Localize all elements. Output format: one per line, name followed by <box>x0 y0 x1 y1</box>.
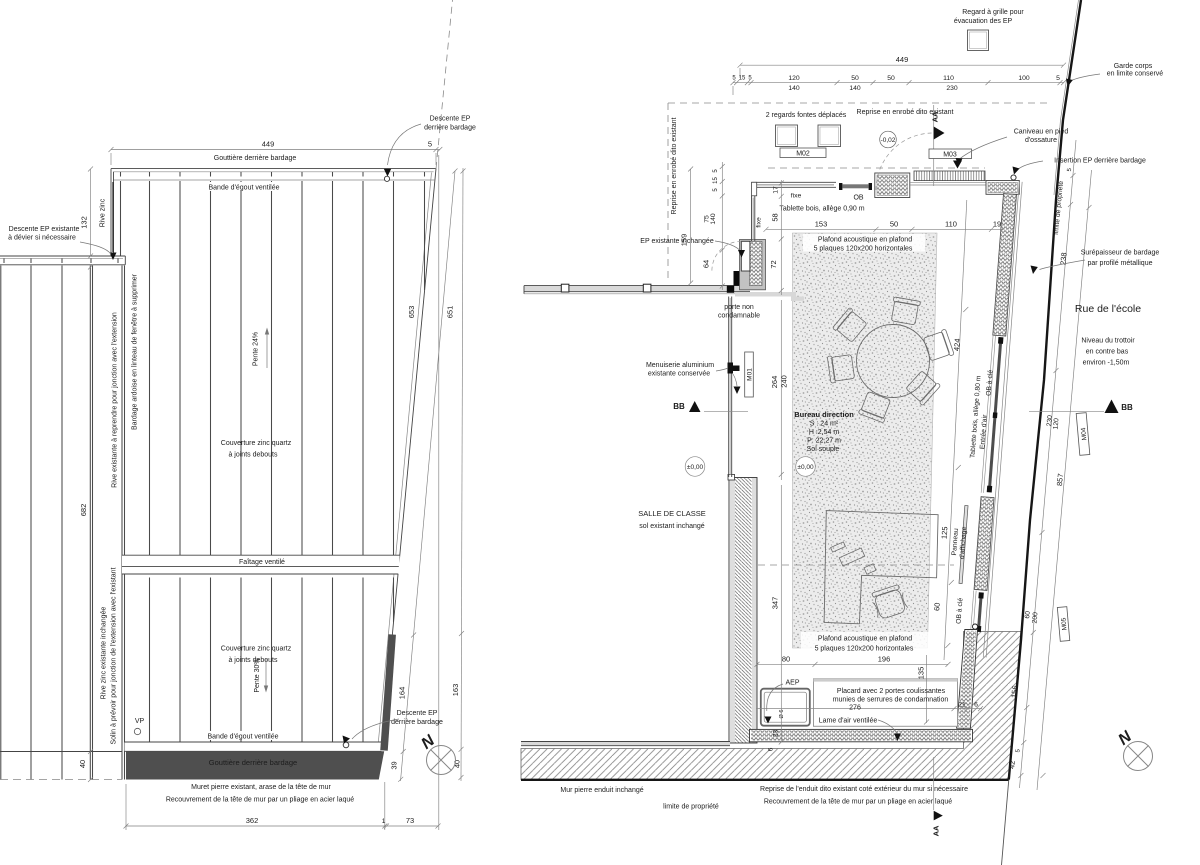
svg-text:VP: VP <box>135 718 145 725</box>
svg-text:Lame d'air ventilée: Lame d'air ventilée <box>819 718 878 725</box>
svg-text:Rive zinc existante inchangée: Rive zinc existante inchangée <box>101 607 108 700</box>
svg-text:Plafond acoustique en plafond: Plafond acoustique en plafond <box>818 237 912 244</box>
svg-text:135: 135 <box>917 667 926 680</box>
svg-text:50: 50 <box>890 220 898 229</box>
svg-text:153: 153 <box>815 220 828 229</box>
svg-text:857: 857 <box>1055 473 1065 486</box>
svg-text:80: 80 <box>782 655 790 664</box>
svg-text:264: 264 <box>770 376 779 389</box>
svg-text:6: 6 <box>768 747 775 751</box>
svg-text:AEP: AEP <box>785 680 799 687</box>
svg-text:derrière bardage: derrière bardage <box>391 719 443 726</box>
svg-text:196: 196 <box>878 655 891 664</box>
svg-text:Recouvrement de la tête de mur: Recouvrement de la tête de mur par un pl… <box>764 799 952 806</box>
svg-text:Placard avec 2 portes coulissa: Placard avec 2 portes coulissantes <box>837 688 946 695</box>
svg-text:Reprise en enrobé dito existan: Reprise en enrobé dito existant <box>857 109 954 116</box>
svg-text:6: 6 <box>974 702 978 709</box>
svg-text:Muret pierre existant, arase d: Muret pierre existant, arase de la tête … <box>191 784 331 791</box>
svg-text:fixe: fixe <box>756 217 763 228</box>
svg-text:60: 60 <box>1024 611 1032 619</box>
svg-text:Pente 30%: Pente 30% <box>254 658 261 692</box>
svg-text:Reprise en enrobé dito existan: Reprise en enrobé dito existant <box>671 118 678 215</box>
svg-text:Tablette bois, allège 0,90 m: Tablette bois, allège 0,90 m <box>779 206 864 213</box>
svg-text:120: 120 <box>1052 418 1060 430</box>
svg-text:5 plaques 120x200 horizontales: 5 plaques 120x200 horizontales <box>815 646 914 653</box>
svg-text:porte non: porte non <box>724 304 754 311</box>
svg-text:évacuation des EP: évacuation des EP <box>954 18 1013 25</box>
svg-text:AA: AA <box>932 825 941 836</box>
svg-text:sol existant inchangé: sol existant inchangé <box>639 523 704 530</box>
svg-text:Rive zinc: Rive zinc <box>100 198 107 227</box>
svg-text:424: 424 <box>952 338 962 351</box>
svg-text:Mur pierre enduit inchangé: Mur pierre enduit inchangé <box>560 787 643 794</box>
svg-text:M01: M01 <box>747 368 754 381</box>
svg-text:à joints debouts: à joints debouts <box>228 452 278 459</box>
svg-text:Bureau direction: Bureau direction <box>794 410 854 419</box>
svg-text:449: 449 <box>896 55 909 64</box>
svg-text:5: 5 <box>428 140 432 149</box>
svg-text:existante conservée: existante conservée <box>648 371 710 378</box>
svg-text:110: 110 <box>943 75 954 82</box>
svg-text:M02: M02 <box>796 150 810 157</box>
svg-text:164: 164 <box>398 687 407 700</box>
svg-text:Menuiserie aluminium: Menuiserie aluminium <box>646 362 714 369</box>
svg-text:OB: OB <box>853 195 863 202</box>
svg-text:200: 200 <box>1031 612 1039 624</box>
svg-text:21: 21 <box>958 702 966 709</box>
svg-text:58: 58 <box>771 213 780 221</box>
svg-text:SALLE DE CLASSE: SALLE DE CLASSE <box>638 509 706 518</box>
svg-text:Insertion EP derrière bardage: Insertion EP derrière bardage <box>1054 158 1146 165</box>
svg-text:50: 50 <box>851 75 859 82</box>
svg-text:fixe: fixe <box>791 193 802 200</box>
svg-text:156: 156 <box>1009 685 1019 698</box>
svg-text:par profilé métallique: par profilé métallique <box>1088 260 1153 267</box>
svg-text:derrière bardage: derrière bardage <box>424 125 476 132</box>
svg-text:19: 19 <box>993 220 1001 229</box>
svg-text:Garde corps: Garde corps <box>1114 63 1153 70</box>
svg-text:±0,00: ±0,00 <box>687 464 704 471</box>
svg-text:Surépaisseur de bardage: Surépaisseur de bardage <box>1081 250 1160 257</box>
svg-text:60: 60 <box>932 602 942 611</box>
svg-text:Sol souple: Sol souple <box>807 446 840 453</box>
svg-text:Bande d'égout ventilée: Bande d'égout ventilée <box>207 734 278 741</box>
svg-text:P: 22,27 m: P: 22,27 m <box>807 438 841 445</box>
svg-text:Plafond acoustique en plafond: Plafond acoustique en plafond <box>818 636 912 643</box>
svg-text:±0,00: ±0,00 <box>797 464 814 471</box>
svg-text:682: 682 <box>79 504 88 517</box>
svg-text:39: 39 <box>390 761 399 769</box>
svg-text:EP existante inchangée: EP existante inchangée <box>640 238 714 245</box>
svg-text:1: 1 <box>382 818 386 825</box>
svg-text:S : 24 m²: S : 24 m² <box>810 421 839 428</box>
svg-text:Ø 6: Ø 6 <box>779 710 785 719</box>
svg-text:230: 230 <box>946 85 958 92</box>
svg-text:40: 40 <box>78 760 87 768</box>
svg-text:Niveau du trottoir: Niveau du trottoir <box>1081 338 1135 345</box>
svg-text:BB: BB <box>673 402 685 411</box>
svg-text:653: 653 <box>407 306 416 319</box>
svg-text:à dévier si nécessaire: à dévier si nécessaire <box>8 235 76 242</box>
svg-text:2 regards fontes déplacés: 2 regards fontes déplacés <box>766 112 847 119</box>
svg-text:environ -1,50m: environ -1,50m <box>1083 360 1130 367</box>
svg-text:M03: M03 <box>943 151 957 158</box>
svg-text:Rue de l'école: Rue de l'école <box>1075 303 1141 315</box>
svg-text:Caniveau en pied: Caniveau en pied <box>1014 129 1069 136</box>
svg-text:M05: M05 <box>1060 617 1068 631</box>
svg-text:Solin à prévoir pour jonction: Solin à prévoir pour jonction de l'exten… <box>111 567 118 744</box>
svg-text:50: 50 <box>887 75 895 82</box>
svg-text:140: 140 <box>788 85 800 92</box>
svg-text:449: 449 <box>262 140 275 149</box>
svg-text:5 plaques 120x200 horizontales: 5 plaques 120x200 horizontales <box>814 246 913 253</box>
svg-text:73: 73 <box>406 816 414 825</box>
svg-text:Descente EP: Descente EP <box>397 710 438 717</box>
svg-text:17: 17 <box>773 186 780 194</box>
svg-text:Bardage ardoise en linteau de: Bardage ardoise en linteau de fenêtre à … <box>132 273 139 430</box>
svg-text:-0,02: -0,02 <box>881 137 896 144</box>
svg-text:362: 362 <box>246 816 259 825</box>
svg-text:Recouvrement de la tête de mur: Recouvrement de la tête de mur par un pl… <box>166 797 354 804</box>
svg-text:159: 159 <box>680 234 689 247</box>
svg-text:276: 276 <box>849 705 861 712</box>
svg-text:15: 15 <box>739 76 746 82</box>
svg-text:Descente EP: Descente EP <box>430 116 471 123</box>
svg-text:Bande d'égout ventilée: Bande d'égout ventilée <box>208 185 279 192</box>
svg-text:651: 651 <box>446 306 455 319</box>
svg-text:condamnable: condamnable <box>718 313 760 320</box>
svg-text:100: 100 <box>1018 75 1030 82</box>
svg-text:d'ossature: d'ossature <box>1025 137 1057 144</box>
svg-text:Reprise de l'enduit dito exist: Reprise de l'enduit dito existant coté e… <box>760 786 968 793</box>
svg-text:Pente 24%: Pente 24% <box>253 332 260 366</box>
svg-text:en contre bas: en contre bas <box>1086 349 1129 356</box>
svg-text:5: 5 <box>1056 75 1060 82</box>
svg-text:110: 110 <box>945 220 957 229</box>
svg-text:Couverture zinc quartz: Couverture zinc quartz <box>221 646 292 653</box>
svg-text:140: 140 <box>710 213 717 225</box>
svg-text:Regard à grille pour: Regard à grille pour <box>962 9 1024 16</box>
svg-text:15: 15 <box>713 177 719 184</box>
svg-text:125: 125 <box>940 526 950 539</box>
svg-text:Descente EP existante: Descente EP existante <box>9 226 80 233</box>
svg-text:163: 163 <box>451 684 460 697</box>
svg-text:42: 42 <box>1007 760 1017 769</box>
svg-text:Gouttière derrière bardage: Gouttière derrière bardage <box>209 758 297 767</box>
svg-text:Gouttière derrière bardage: Gouttière derrière bardage <box>214 155 297 162</box>
svg-text:72: 72 <box>769 260 778 268</box>
svg-text:BB: BB <box>1121 403 1133 412</box>
svg-text:120: 120 <box>788 75 800 82</box>
svg-text:limite de propriété: limite de propriété <box>663 804 719 811</box>
svg-text:132: 132 <box>80 216 89 229</box>
svg-text:347: 347 <box>771 597 780 610</box>
svg-text:Rive existante à reprendre pou: Rive existante à reprendre pour jonction… <box>112 312 119 488</box>
svg-text:240: 240 <box>780 375 789 388</box>
svg-text:munies de serrures de condamna: munies de serrures de condamnation <box>833 697 949 704</box>
svg-text:H :2,54 m: H :2,54 m <box>809 429 840 436</box>
svg-text:64: 64 <box>702 260 711 268</box>
svg-text:M04: M04 <box>1080 427 1088 441</box>
svg-text:en limite conservé: en limite conservé <box>1107 71 1164 78</box>
svg-text:140: 140 <box>849 85 861 92</box>
svg-text:Faîtage ventilé: Faîtage ventilé <box>239 559 285 566</box>
svg-text:23: 23 <box>773 730 780 738</box>
svg-text:Couverture zinc quartz: Couverture zinc quartz <box>221 440 292 447</box>
